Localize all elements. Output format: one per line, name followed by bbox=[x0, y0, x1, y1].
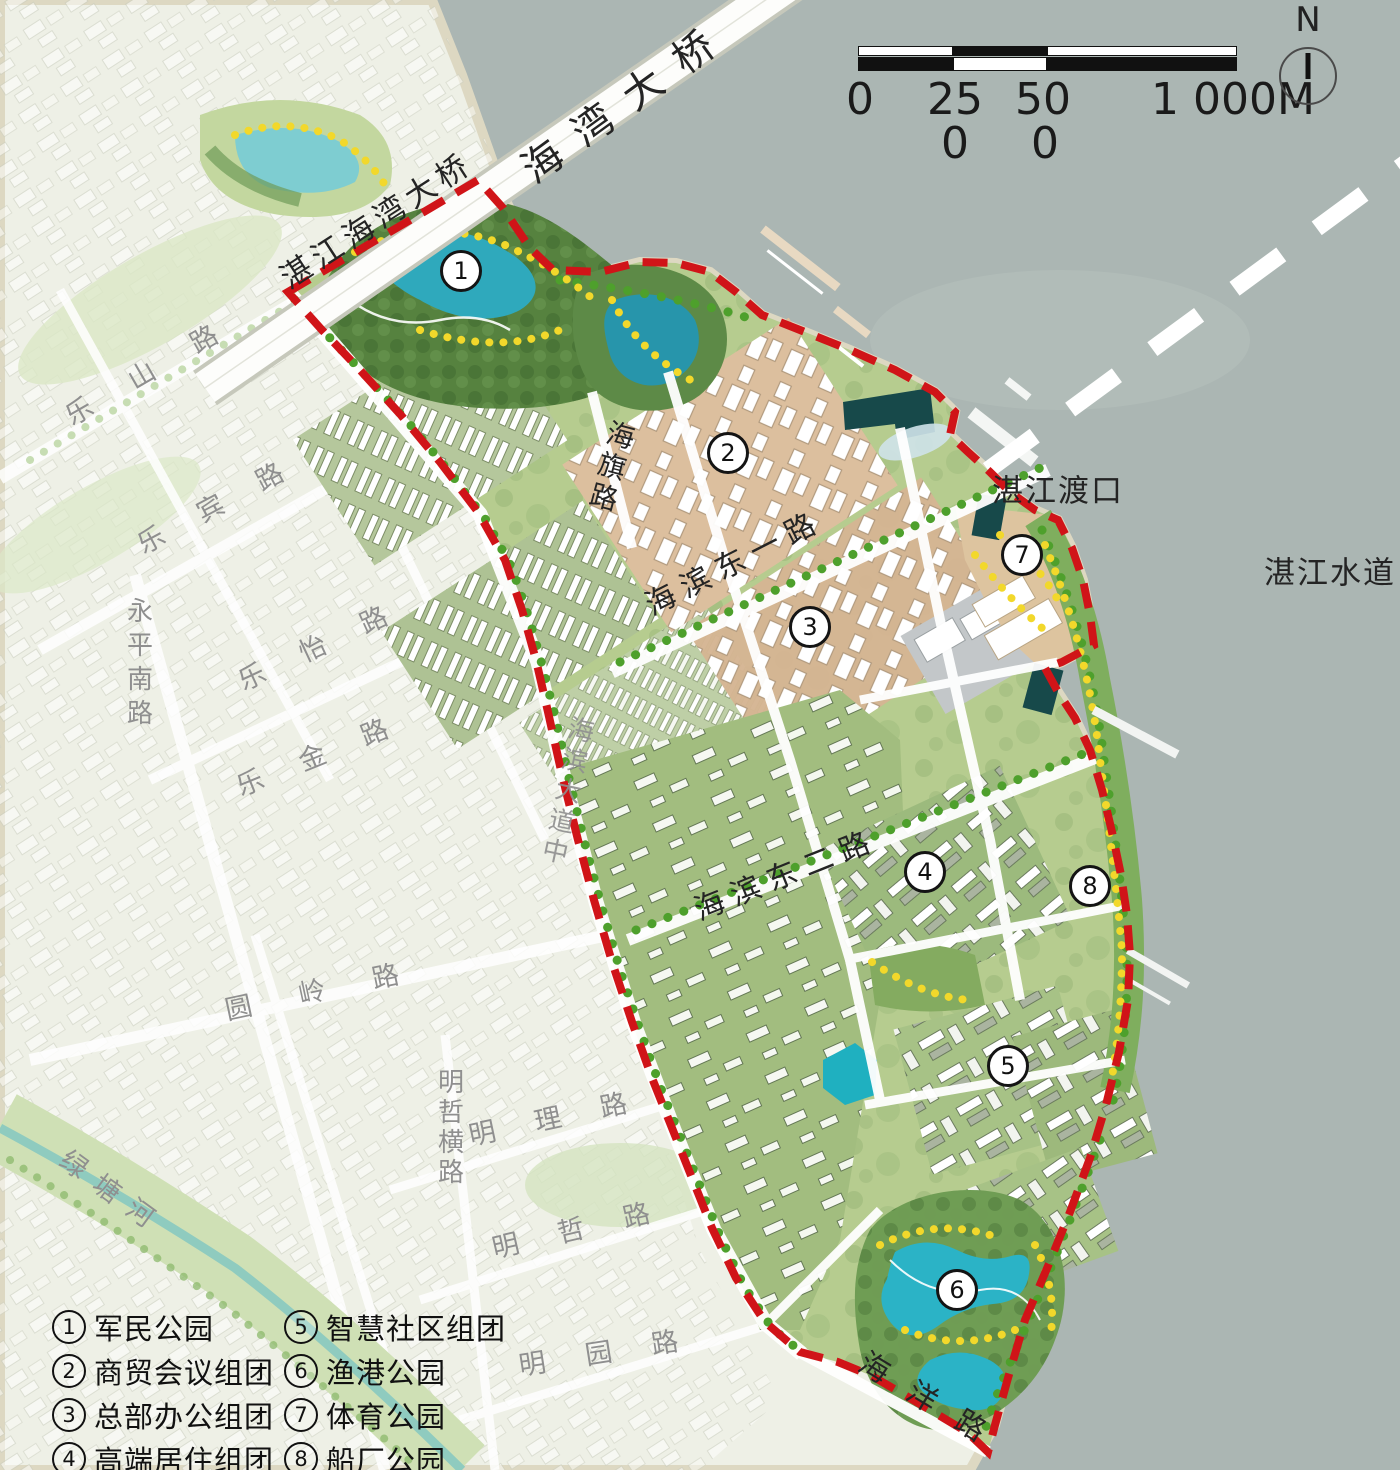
legend-item-8: 8 船厂公园 bbox=[284, 1438, 446, 1470]
map-marker-8: 8 bbox=[1069, 865, 1111, 907]
scale-label-500-wrap: 0 bbox=[1031, 122, 1059, 166]
map-marker-6: 6 bbox=[936, 1269, 978, 1311]
map-marker-2: 2 bbox=[707, 432, 749, 474]
scale-label-50: 50 bbox=[1015, 78, 1071, 122]
legend-number-5: 5 bbox=[284, 1310, 318, 1344]
compass-circle bbox=[1279, 47, 1337, 105]
legend-item-7: 7 体育公园 bbox=[284, 1394, 446, 1436]
scale-label-250-wrap: 0 bbox=[941, 122, 969, 166]
legend-label-8: 船厂公园 bbox=[326, 1438, 446, 1470]
map-marker-1: 1 bbox=[440, 250, 482, 292]
legend-item-4: 4 高端居住组团 bbox=[52, 1438, 274, 1470]
legend-number-6: 6 bbox=[284, 1354, 318, 1388]
legend-number-8: 8 bbox=[284, 1442, 318, 1470]
legend-item-2: 2 商贸会议组团 bbox=[52, 1350, 274, 1392]
scale-seg bbox=[953, 57, 1047, 71]
scale-seg bbox=[953, 46, 1047, 56]
map-marker-7: 7 bbox=[1001, 534, 1043, 576]
scale-seg bbox=[1047, 57, 1237, 71]
legend-label-1: 军民公园 bbox=[94, 1306, 214, 1348]
north-label: N bbox=[1295, 0, 1320, 40]
map-marker-5: 5 bbox=[987, 1045, 1029, 1087]
legend-number-4: 4 bbox=[52, 1442, 86, 1470]
legend-label-7: 体育公园 bbox=[326, 1394, 446, 1436]
scale-seg bbox=[858, 57, 953, 71]
legend-number-3: 3 bbox=[52, 1398, 86, 1432]
legend-label-4: 高端居住组团 bbox=[94, 1438, 274, 1470]
legend-label-2: 商贸会议组团 bbox=[94, 1350, 274, 1392]
scale-label-25: 25 bbox=[927, 78, 983, 122]
legend-item-3: 3 总部办公组团 bbox=[52, 1394, 274, 1436]
legend-number-2: 2 bbox=[52, 1354, 86, 1388]
map-marker-3: 3 bbox=[789, 606, 831, 648]
scale-seg bbox=[1047, 46, 1237, 56]
legend-label-6: 渔港公园 bbox=[326, 1350, 446, 1392]
compass-needle bbox=[1306, 53, 1311, 79]
legend-number-1: 1 bbox=[52, 1310, 86, 1344]
legend-item-1: 1 军民公园 bbox=[52, 1306, 214, 1348]
legend-item-6: 6 渔港公园 bbox=[284, 1350, 446, 1392]
scale-label-0: 0 bbox=[846, 78, 874, 122]
legend-label-3: 总部办公组团 bbox=[94, 1394, 274, 1436]
masterplan-map: 海湾大桥 湛江海湾大桥 湛江渡口 湛江水道 乐山路 乐宾路 永平南路 乐怡路 乐… bbox=[0, 0, 1400, 1470]
legend-item-5: 5 智慧社区组团 bbox=[284, 1306, 506, 1348]
map-graphics bbox=[0, 0, 1400, 1470]
legend-number-7: 7 bbox=[284, 1398, 318, 1432]
legend-label-5: 智慧社区组团 bbox=[326, 1306, 506, 1348]
map-marker-4: 4 bbox=[904, 851, 946, 893]
scale-seg bbox=[858, 46, 953, 56]
